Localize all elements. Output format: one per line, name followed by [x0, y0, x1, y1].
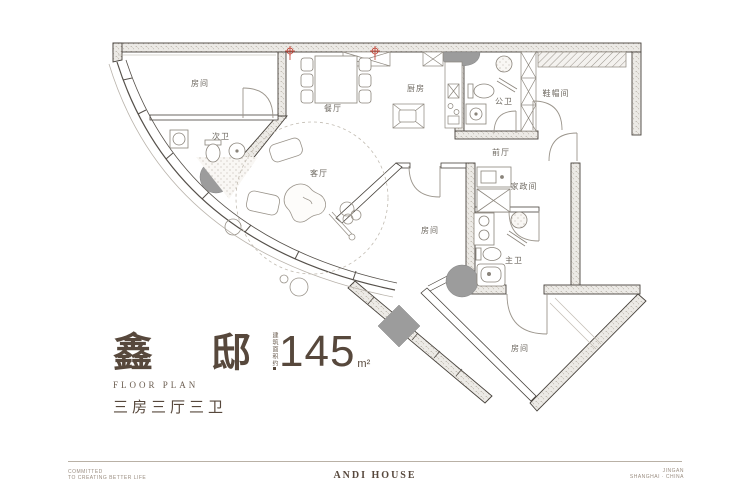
footer-divider: [68, 461, 682, 462]
room-label: 房间: [421, 225, 439, 235]
door-entry: [549, 133, 577, 161]
brochure-page: 房间 次卫 餐厅 厨房 公卫 鞋帽间 前厅 客厅 家政间 房间 主卫 房间 鑫 …: [0, 0, 750, 500]
column-round-center: [446, 265, 478, 297]
room-label: 房间: [511, 343, 529, 353]
layout-description: 三房三厅三卫: [113, 396, 370, 417]
door-bedroom-middle: [409, 166, 440, 197]
area-prefix-column: 建筑面积约: [271, 332, 277, 370]
room-label: 家政间: [511, 181, 538, 191]
floor-plan-subtitle: FLOOR PLAN: [113, 380, 370, 390]
room-label: 餐厅: [324, 104, 342, 113]
area-prefix-label: 建筑面积约: [271, 332, 277, 367]
door-bedroom-bottom: [507, 294, 547, 334]
footer-location: JINGAN SHANGHAI · CHINA: [630, 468, 684, 480]
area-group: 建筑面积约 145 m²: [271, 331, 370, 373]
project-name: 鑫 邸: [113, 331, 275, 375]
room-label: 鞋帽间: [543, 88, 570, 98]
floor-plan-drawing: 房间 次卫 餐厅 厨房 公卫 鞋帽间 前厅 客厅 家政间 房间 主卫 房间: [0, 0, 750, 500]
door-bedroom-topleft: [243, 88, 273, 118]
door-cloakroom: [533, 101, 562, 130]
room-label: 前厅: [492, 147, 510, 157]
title-block: 鑫 邸 建筑面积约 145 m² FLOOR PLAN 三房三厅三卫: [113, 331, 370, 417]
area-unit: m²: [357, 358, 370, 370]
room-label: 客厅: [310, 168, 328, 178]
room-label: 次卫: [212, 131, 230, 141]
footer-location-line2: SHANGHAI · CHINA: [630, 474, 684, 480]
room-label: 厨房: [407, 83, 425, 93]
room-label: 公卫: [495, 97, 513, 106]
room-label: 主卫: [505, 255, 523, 265]
door-public-bath: [494, 111, 516, 133]
area-dot: [273, 367, 276, 370]
room-label: 房间: [191, 78, 209, 88]
area-value: 145: [279, 331, 355, 373]
